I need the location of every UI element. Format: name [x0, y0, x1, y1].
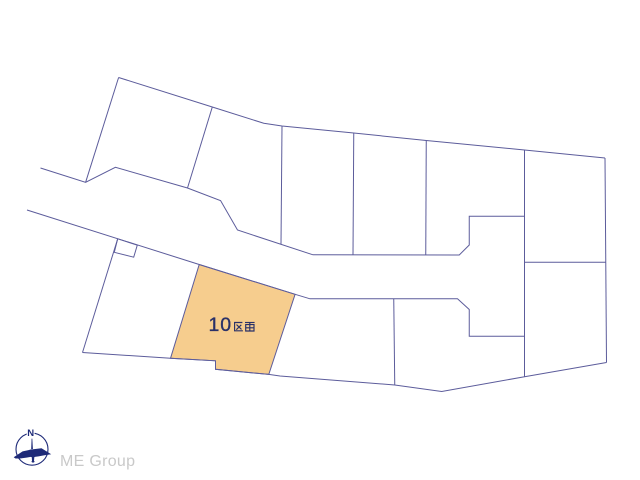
svg-text:N: N: [27, 428, 34, 439]
svg-text:ME Group: ME Group: [60, 453, 135, 470]
svg-text:10: 10: [209, 314, 233, 336]
